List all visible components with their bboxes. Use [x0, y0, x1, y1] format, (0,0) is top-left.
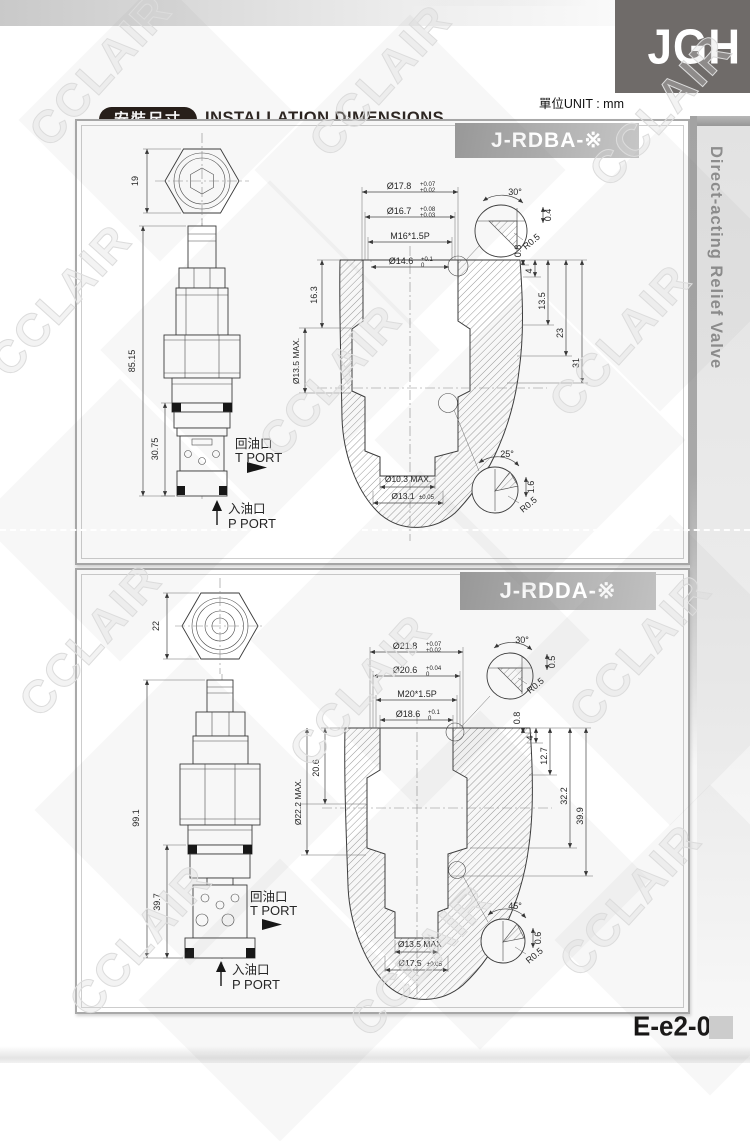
t-port-en: T PORT	[250, 903, 297, 918]
p-port-arrow-icon	[212, 500, 222, 511]
sidebar-accent-bar	[690, 116, 697, 766]
sidebar-category-label: Direct-acting Relief Valve	[706, 146, 725, 766]
bore1-label: Ø17.8	[387, 181, 412, 191]
brand-logo-block: JGH	[615, 0, 750, 93]
p-port-en: P PORT	[232, 977, 280, 992]
side-depth-label: 16.3	[309, 286, 319, 304]
bottom-dia2-label: Ø13.1	[391, 491, 414, 501]
unit-label: 單位UNIT : mm	[539, 93, 624, 112]
side-depth-label: 20.6	[311, 759, 321, 777]
bore1-tol-dn: +0.02	[420, 188, 436, 194]
t-port-zh: 回油口	[250, 890, 288, 904]
depth-dim-1: 4	[524, 268, 534, 273]
dim-397-label: 39.7	[152, 893, 162, 911]
bottom-detail-chamfer: 0.6	[533, 932, 543, 945]
side-view-valve: 85.15 30.75 回油口 T PORT 入油口 P PORT	[127, 219, 282, 531]
bore3-label: M20*1.5P	[397, 689, 437, 699]
bottom-detail-radius: R0.5	[524, 946, 545, 966]
drawing-box-jrdba: 19	[75, 119, 690, 565]
bottom-dia1-label: Ø10.3 MAX.	[385, 474, 431, 484]
dim-3075-label: 30.75	[150, 438, 160, 461]
page-code-square	[709, 1016, 733, 1039]
bottom-detail-chamfer: 1.6	[526, 481, 536, 494]
bottom-detail-radius: R0.5	[518, 495, 539, 515]
p-port-arrow-icon	[216, 961, 226, 972]
bottom-dia2-tol: ±0.05	[419, 495, 435, 501]
p-port-en: P PORT	[228, 516, 276, 531]
t-port-label: 回油口 T PORT	[250, 890, 297, 930]
bottom-detail-angle: 45°	[508, 901, 522, 911]
depth-dim-3: 32.2	[559, 787, 569, 805]
dim-insert-depth: 39.7	[152, 845, 186, 958]
bore3-label: M16*1.5P	[390, 231, 430, 241]
drawing-jrdba: 19	[77, 121, 684, 559]
top-view-hex: 22	[151, 578, 265, 674]
side-dia-label: Ø22.2 MAX.	[293, 779, 303, 825]
depth-dim-1: 4	[525, 735, 535, 740]
drawing-box-jrdda: 22	[75, 568, 690, 1014]
p-port-label: 入油口 P PORT	[216, 961, 280, 992]
top-detail-angle: 30°	[515, 635, 529, 645]
t-port-zh: 回油口	[235, 437, 273, 451]
bore-dims: Ø21.8 +0.07 +0.02 Ø20.6 +0.04 0 M20*1.5P…	[370, 641, 463, 728]
top-view-hex: 19	[130, 133, 249, 229]
top-detail-angle: 30°	[508, 187, 522, 197]
depth-dim-2: 12.7	[539, 747, 549, 765]
dim-insert-depth: 30.75	[150, 403, 175, 496]
side-view-valve: 99.1 39.7 回油口 T PORT 入油口 P PORT	[131, 674, 297, 992]
bore2-label: Ø16.7	[387, 206, 412, 216]
bottom-dia1-label: Ø13.5 MAX.	[398, 939, 444, 949]
bore2-tol-dn: 0	[426, 672, 430, 678]
bottom-detail-angle: 25°	[500, 449, 514, 459]
bottom-dia2-label: Ø17.5	[398, 958, 421, 968]
section-view-cavity: Ø17.8 +0.07 +0.02 Ø16.7 +0.08 +0.03 M16*…	[291, 181, 588, 541]
brand-logo-text: JGH	[648, 20, 741, 76]
bore4-label: Ø18.6	[396, 709, 421, 719]
bore2-tol-dn: +0.03	[420, 213, 436, 219]
drawing-jrdda: 22	[77, 570, 684, 1008]
dim-19-label: 19	[130, 176, 140, 186]
dim-991-label: 99.1	[131, 809, 141, 827]
p-port-zh: 入油口	[228, 502, 266, 516]
depth-dim-4: 31	[571, 358, 581, 368]
depth-dim-2: 13.5	[537, 292, 547, 310]
section-view-cavity: Ø21.8 +0.07 +0.02 Ø20.6 +0.04 0 M20*1.5P…	[293, 635, 593, 1000]
depth-dim-4: 39.9	[575, 807, 585, 825]
bore4-label: Ø14.6	[389, 256, 414, 266]
top-chamfer-detail: 30° 0.5 R0.5	[446, 635, 557, 741]
bore4-tol-dn: 0	[421, 263, 425, 269]
depth-dim-0: 0.8	[513, 245, 523, 258]
top-detail-chamfer: 0.5	[547, 656, 557, 669]
footer-band	[0, 1046, 750, 1063]
t-port-label: 回油口 T PORT	[235, 437, 282, 473]
side-dia-label: Ø13.5 MAX.	[291, 338, 301, 384]
model-banner-jrdda: J-RDDA-※	[460, 572, 656, 610]
top-detail-chamfer: 0.4	[543, 209, 553, 222]
dim-8515-label: 85.15	[127, 350, 137, 373]
bore4-tol-dn: 0	[428, 716, 432, 722]
t-port-en: T PORT	[235, 450, 282, 465]
bore1-label: Ø21.8	[393, 641, 418, 651]
bore1-tol-dn: +0.02	[426, 648, 442, 654]
depth-dim-0: 0.8	[512, 712, 522, 725]
depth-dim-3: 23	[555, 328, 565, 338]
bore2-label: Ø20.6	[393, 665, 418, 675]
p-port-label: 入油口 P PORT	[212, 500, 276, 531]
model-banner-jrdba: J-RDBA-※	[455, 123, 639, 158]
bore-dims: Ø17.8 +0.07 +0.02 Ø16.7 +0.08 +0.03 M16*…	[362, 181, 458, 269]
p-port-zh: 入油口	[232, 963, 270, 977]
dim-22-label: 22	[151, 621, 161, 631]
bottom-dia2-tol: ±0.05	[427, 962, 443, 968]
sidebar-top-bar	[690, 116, 750, 126]
t-port-arrow-icon	[262, 919, 282, 930]
catalog-page: { "page": { "logo_text": "JGH", "unit_la…	[0, 0, 750, 1063]
